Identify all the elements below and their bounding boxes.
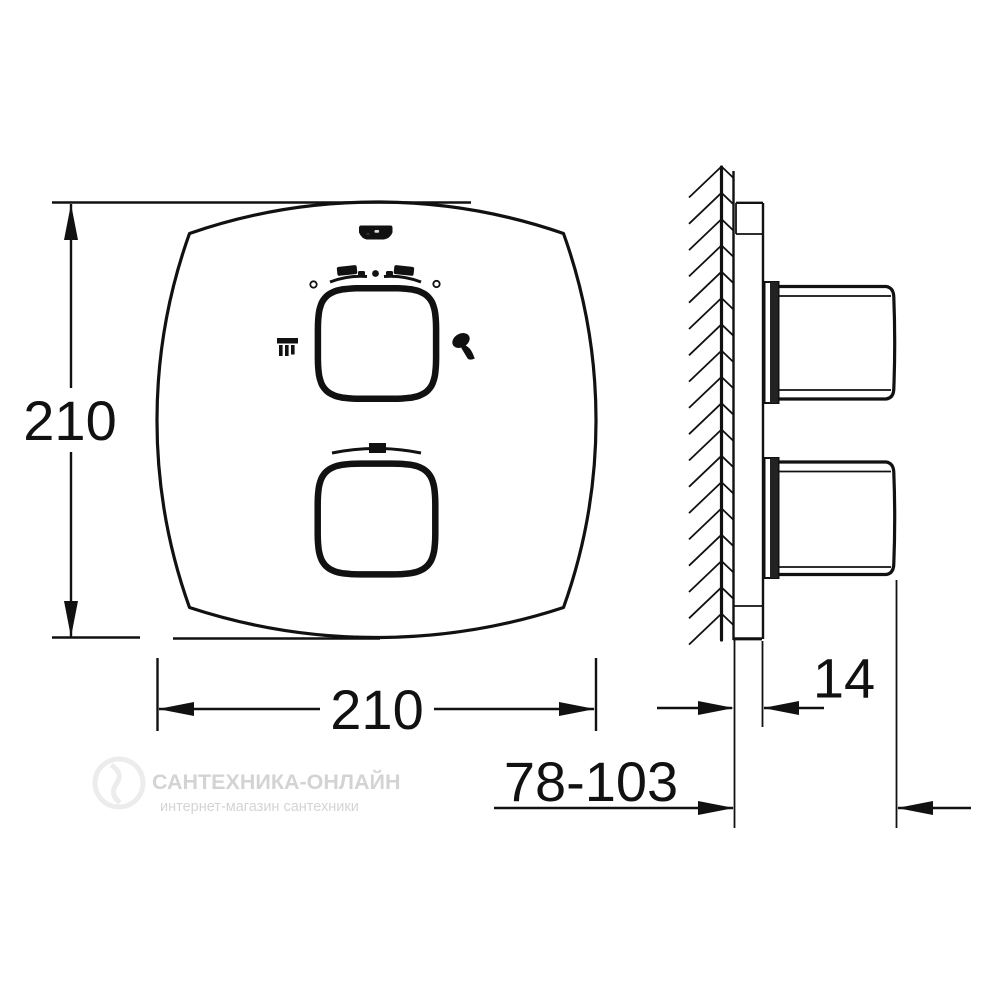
svg-text:САНТЕХНИКА-ОНЛАЙН: САНТЕХНИКА-ОНЛАЙН	[152, 769, 401, 794]
svg-text:210: 210	[330, 678, 423, 741]
svg-text:интернет-магазин сантехники: интернет-магазин сантехники	[160, 799, 359, 815]
svg-text:78-103: 78-103	[504, 750, 678, 813]
svg-text:210: 210	[23, 389, 116, 452]
svg-text:14: 14	[813, 647, 875, 710]
